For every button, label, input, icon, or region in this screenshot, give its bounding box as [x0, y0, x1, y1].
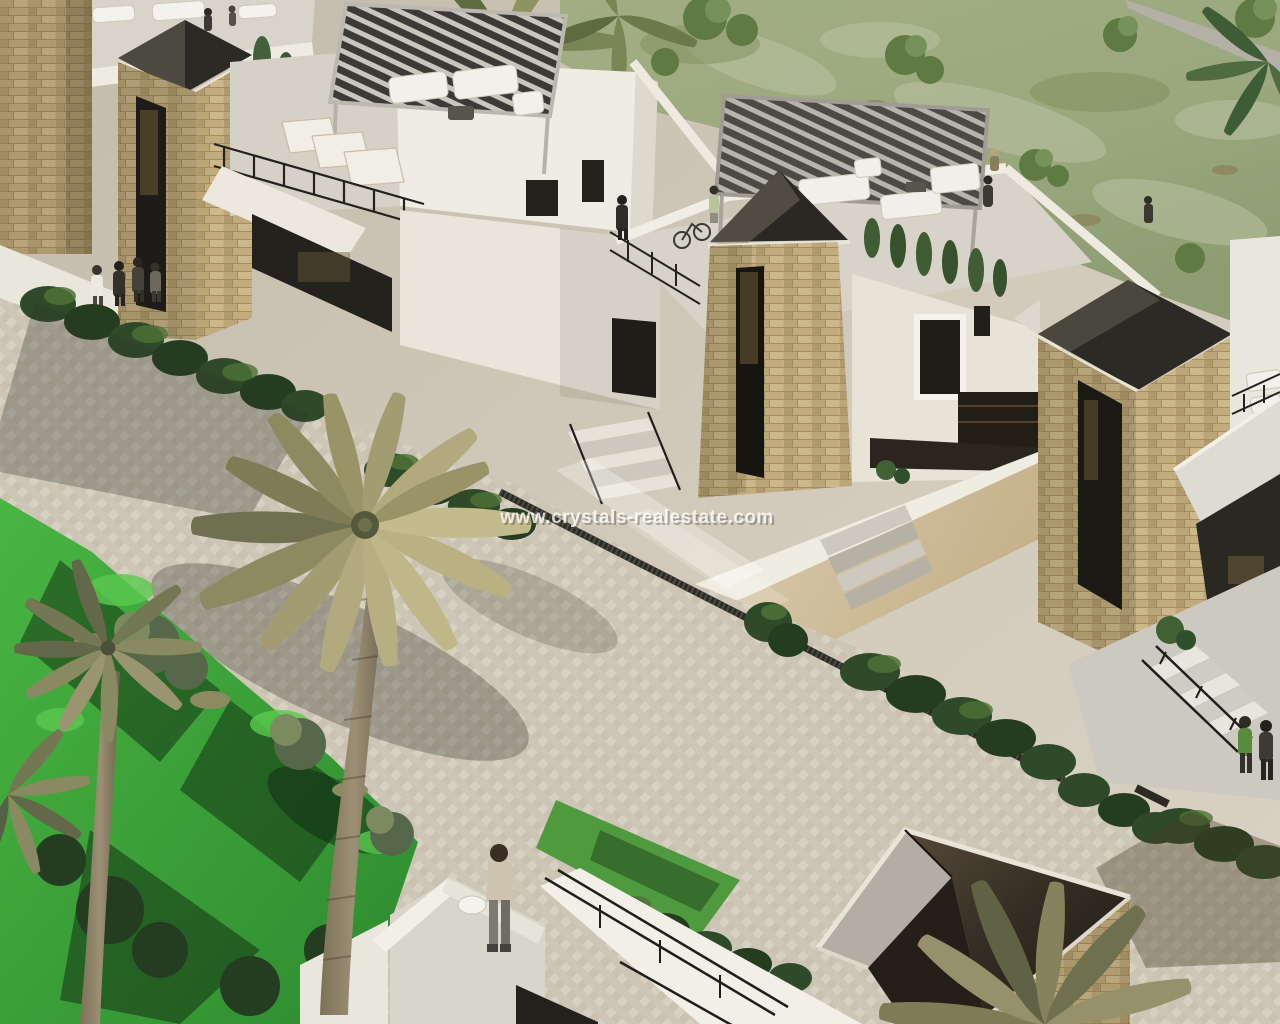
glass-door — [612, 318, 656, 398]
person — [983, 176, 993, 208]
window — [974, 306, 990, 336]
person — [990, 148, 999, 171]
window — [526, 180, 558, 216]
person — [709, 186, 719, 224]
terrace-table — [458, 896, 486, 914]
scene: www.crystals-realestate.com www.crystals… — [0, 0, 1280, 1024]
person — [1144, 196, 1153, 223]
watermark-text: www.crystals-realestate.com — [499, 507, 774, 528]
stone-tower-far-left — [0, 0, 92, 254]
person — [1259, 720, 1273, 780]
window — [582, 160, 604, 202]
real-estate-render: www.crystals-realestate.com www.crystals… — [0, 0, 1280, 1024]
person — [1238, 716, 1252, 773]
plant — [1176, 630, 1196, 650]
watermark: www.crystals-realestate.com www.crystals… — [499, 507, 776, 530]
window — [920, 320, 960, 394]
